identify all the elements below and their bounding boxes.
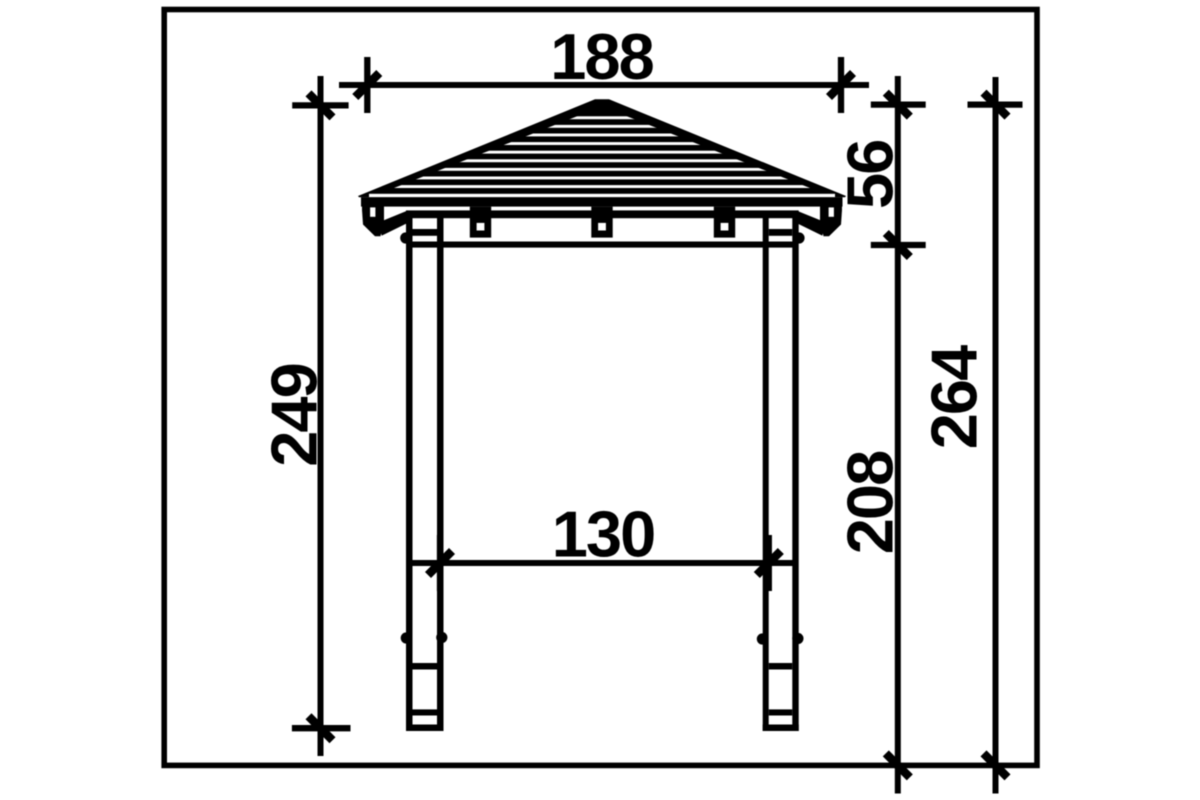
svg-text:188: 188 [550, 20, 653, 93]
svg-text:130: 130 [552, 498, 654, 571]
svg-text:208: 208 [834, 451, 907, 554]
svg-text:249: 249 [257, 364, 330, 466]
svg-text:56: 56 [833, 141, 906, 209]
svg-text:264: 264 [917, 345, 990, 449]
